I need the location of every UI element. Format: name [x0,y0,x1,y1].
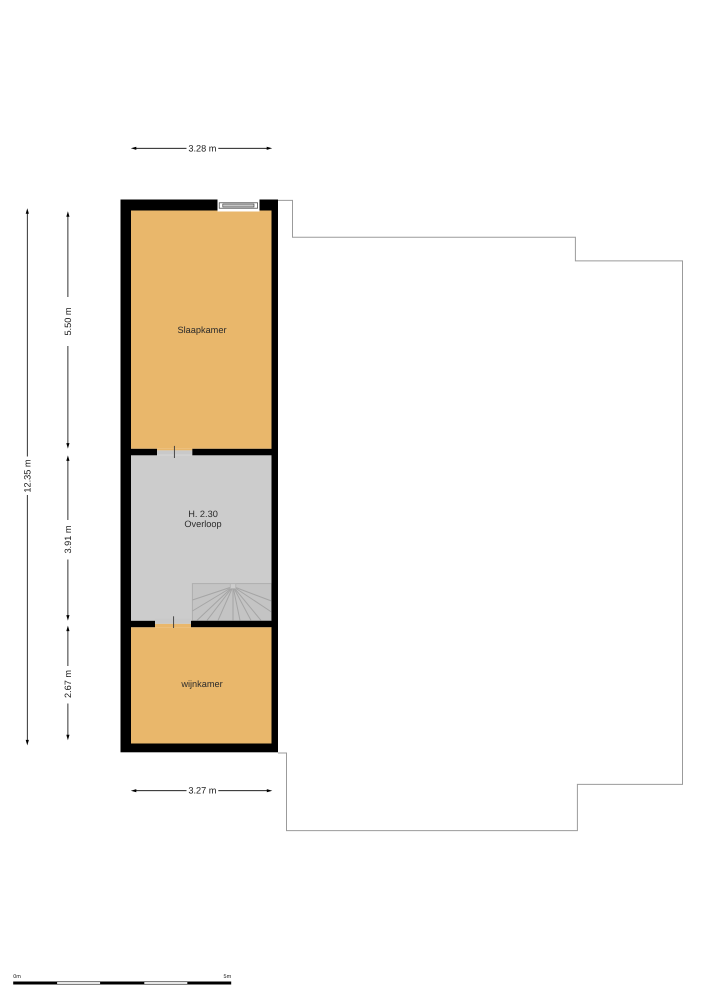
svg-text:2.67 m: 2.67 m [63,670,73,698]
svg-text:Slaapkamer: Slaapkamer [177,325,226,335]
svg-text:3.28 m: 3.28 m [188,143,216,153]
svg-text:wijnkamer: wijnkamer [180,679,222,689]
svg-text:Overloop: Overloop [184,519,221,529]
svg-text:0m: 0m [13,974,21,980]
svg-text:5.50 m: 5.50 m [63,307,73,335]
svg-text:12.35 m: 12.35 m [22,459,32,493]
svg-text:3.27 m: 3.27 m [188,786,216,796]
svg-text:H. 2.30: H. 2.30 [188,509,218,519]
svg-text:3.91 m: 3.91 m [63,525,73,553]
svg-text:5m: 5m [224,974,232,980]
